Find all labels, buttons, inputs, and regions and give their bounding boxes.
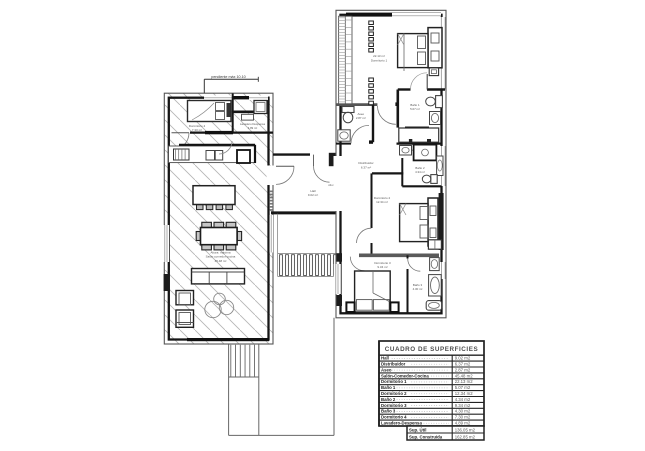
svg-text:4.34 m2: 4.34 m2 <box>455 397 471 402</box>
svg-text:6.37 m²: 6.37 m² <box>361 165 371 169</box>
svg-text:9.02 m2: 9.02 m2 <box>455 356 471 361</box>
svg-text:Lavadero-Despensa: Lavadero-Despensa <box>381 420 422 425</box>
svg-text:Aseo: Aseo <box>381 367 392 372</box>
svg-text:Baño 3: Baño 3 <box>381 409 396 414</box>
svg-text:7.30 m2: 7.30 m2 <box>455 415 471 420</box>
svg-text:5.07 m2: 5.07 m2 <box>455 385 471 390</box>
svg-text:Dormitorio 1: Dormitorio 1 <box>381 379 407 384</box>
svg-text:162.85 m2: 162.85 m2 <box>455 435 476 440</box>
svg-text:7.30 m²: 7.30 m² <box>192 128 202 132</box>
svg-text:12.34 m²: 12.34 m² <box>376 200 388 204</box>
svg-text:pendiente máx 10.10: pendiente máx 10.10 <box>211 75 245 79</box>
svg-text:9.02 m²: 9.02 m² <box>308 193 318 197</box>
svg-text:5.07 m²: 5.07 m² <box>410 107 420 111</box>
svg-text:Sup. Construida: Sup. Construida <box>409 435 443 440</box>
svg-text:12.34 m2: 12.34 m2 <box>455 391 474 396</box>
svg-text:2.87 m2: 2.87 m2 <box>455 367 471 372</box>
svg-text:2.87 m²: 2.87 m² <box>356 116 366 120</box>
svg-text:4.34 m²: 4.34 m² <box>415 170 425 174</box>
svg-text:Sup. Útil: Sup. Útil <box>409 428 426 433</box>
svg-text:9.34 m²: 9.34 m² <box>377 265 387 269</box>
svg-text:4.89 m2: 4.89 m2 <box>455 420 471 425</box>
svg-text:4.30 m2: 4.30 m2 <box>455 409 471 414</box>
svg-text:9.34 m2: 9.34 m2 <box>455 403 471 408</box>
svg-text:CUADRO DE SUPERFICIES: CUADRO DE SUPERFICIES <box>385 346 478 353</box>
svg-text:4.30 m²: 4.30 m² <box>413 287 423 291</box>
svg-text:45.48 m²: 45.48 m² <box>215 259 227 263</box>
svg-text:Distribuidor: Distribuidor <box>381 361 406 366</box>
svg-text:Baño 2: Baño 2 <box>381 397 396 402</box>
svg-text:Dormitorio 2: Dormitorio 2 <box>381 391 407 396</box>
svg-text:136.05 m2: 136.05 m2 <box>455 428 476 433</box>
svg-text:Dormitorio 4: Dormitorio 4 <box>381 415 407 420</box>
svg-text:22.13 m2: 22.13 m2 <box>455 379 474 384</box>
svg-text:45.48 m2: 45.48 m2 <box>455 373 474 378</box>
svg-text:Salón-Comedor-Cocina: Salón-Comedor-Cocina <box>381 373 429 378</box>
svg-text:4.89 m²: 4.89 m² <box>248 126 258 130</box>
svg-text:Hall: Hall <box>381 356 389 361</box>
svg-text:Baño 1: Baño 1 <box>381 385 396 390</box>
svg-text:Dormitorio 1: Dormitorio 1 <box>371 58 388 62</box>
svg-text:Dormitorio 3: Dormitorio 3 <box>381 403 407 408</box>
svg-text:6.37 m2: 6.37 m2 <box>455 361 471 366</box>
